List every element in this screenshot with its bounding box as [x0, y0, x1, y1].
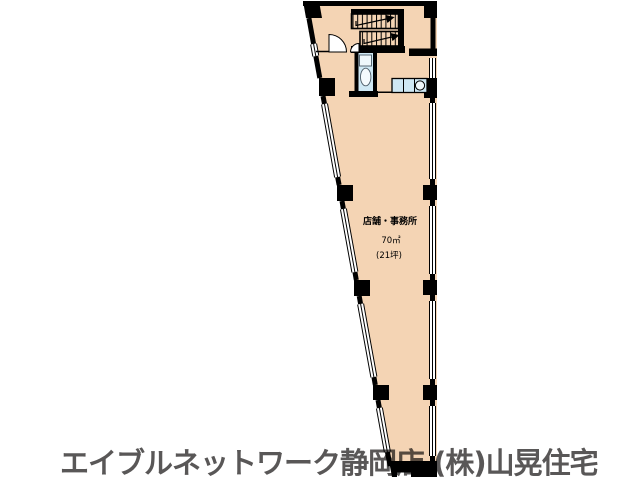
- pillar-icon: [303, 1, 322, 18]
- wall-bottom: [389, 461, 437, 477]
- pillar-icon: [423, 385, 437, 400]
- floor-plan: 店舗・事務所 70㎡ (21坪): [0, 0, 640, 480]
- room-area-tsubo: (21坪): [376, 251, 402, 261]
- wall-stub-right: [409, 49, 437, 57]
- room-area-sqm: 70㎡: [381, 236, 401, 246]
- sink-bowl-icon: [415, 81, 424, 90]
- pillar-icon: [354, 280, 370, 296]
- pillar-icon: [424, 1, 437, 18]
- pillar-icon: [423, 185, 437, 200]
- pillar-icon: [423, 280, 437, 295]
- stair-flight-lower: [360, 32, 403, 47]
- wall-top: [303, 1, 437, 6]
- pillar-icon: [373, 385, 389, 400]
- bottom-wall-notch: [397, 473, 411, 478]
- pillar-icon: [319, 78, 335, 96]
- room-label: 店舗・事務所: [363, 215, 417, 227]
- pillar-icon: [337, 185, 353, 201]
- window-icon: [314, 44, 316, 56]
